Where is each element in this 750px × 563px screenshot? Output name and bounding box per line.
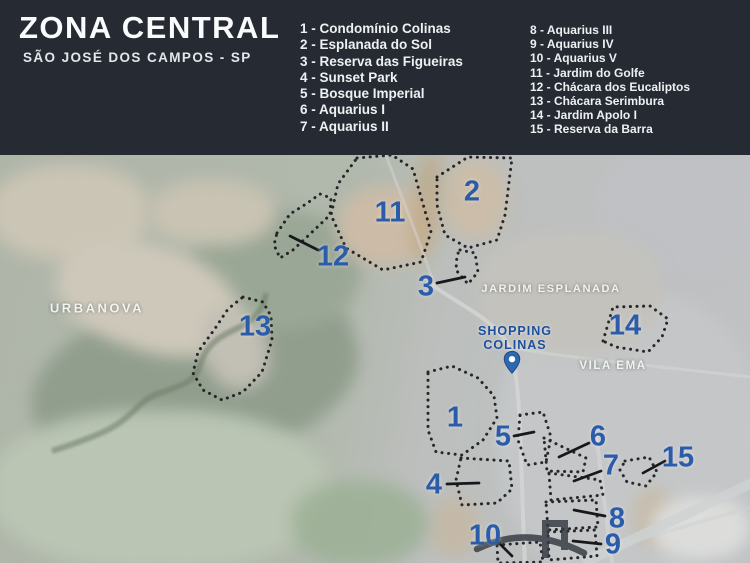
legend-item-15: 15 - Reserva da Barra bbox=[530, 122, 690, 136]
map-marker-3: 3 bbox=[418, 273, 434, 302]
brand-block: ZONA CENTRAL SÃO JOSÉ DOS CAMPOS - SP bbox=[19, 11, 280, 65]
map-marker-12: 12 bbox=[317, 243, 349, 272]
satellite-map: URBANOVA JARDIM ESPLANADA VILA EMA SHOPP… bbox=[0, 155, 750, 563]
infographic-zona-central: ZONA CENTRAL SÃO JOSÉ DOS CAMPOS - SP 1 … bbox=[0, 0, 750, 563]
map-marker-5: 5 bbox=[495, 423, 511, 452]
legend-item-3: 3 - Reserva das Figueiras bbox=[300, 54, 463, 70]
legend-item-4: 4 - Sunset Park bbox=[300, 70, 463, 86]
leader-line-5 bbox=[514, 432, 534, 436]
legend-item-14: 14 - Jardim Apolo I bbox=[530, 108, 690, 122]
legend-item-10: 10 - Aquarius V bbox=[530, 51, 690, 65]
river bbox=[52, 293, 266, 451]
poi-label-line1: SHOPPING bbox=[478, 324, 552, 338]
legend-column-2: 8 - Aquarius III 9 - Aquarius IV 10 - Aq… bbox=[530, 23, 690, 137]
location-pin-icon bbox=[503, 351, 521, 380]
page-subtitle: SÃO JOSÉ DOS CAMPOS - SP bbox=[23, 50, 280, 65]
map-marker-10: 10 bbox=[469, 522, 501, 551]
legend-column-1: 1 - Condomínio Colinas 2 - Esplanada do … bbox=[300, 21, 463, 135]
leader-line-4 bbox=[447, 483, 479, 484]
leader-line-6 bbox=[559, 443, 589, 457]
legend-item-9: 9 - Aquarius IV bbox=[530, 37, 690, 51]
map-marker-11: 11 bbox=[375, 199, 406, 228]
legend-item-11: 11 - Jardim do Golfe bbox=[530, 66, 690, 80]
legend-item-5: 5 - Bosque Imperial bbox=[300, 86, 463, 102]
region-outline-15 bbox=[620, 457, 657, 486]
area-label-jardim-esplanada: JARDIM ESPLANADA bbox=[481, 283, 620, 295]
legend-item-6: 6 - Aquarius I bbox=[300, 102, 463, 118]
legend-item-7: 7 - Aquarius II bbox=[300, 119, 463, 135]
map-marker-15: 15 bbox=[662, 444, 694, 473]
leader-line-12 bbox=[290, 236, 318, 250]
poi-label-shopping-colinas: SHOPPING COLINAS bbox=[478, 324, 552, 352]
map-marker-9: 9 bbox=[605, 531, 621, 560]
map-marker-6: 6 bbox=[590, 423, 606, 452]
map-marker-14: 14 bbox=[609, 312, 641, 341]
page-title: ZONA CENTRAL bbox=[19, 11, 280, 45]
legend-item-2: 2 - Esplanada do Sol bbox=[300, 37, 463, 53]
legend-item-8: 8 - Aquarius III bbox=[530, 23, 690, 37]
map-marker-1: 1 bbox=[447, 404, 463, 433]
map-marker-2: 2 bbox=[464, 178, 480, 207]
map-marker-4: 4 bbox=[426, 471, 442, 500]
roads bbox=[386, 155, 750, 563]
legend-item-1: 1 - Condomínio Colinas bbox=[300, 21, 463, 37]
legend-item-12: 12 - Chácara dos Eucaliptos bbox=[530, 80, 690, 94]
area-label-urbanova: URBANOVA bbox=[50, 301, 144, 316]
area-label-vila-ema: VILA EMA bbox=[579, 360, 646, 372]
region-outline-10 bbox=[497, 542, 543, 563]
header-band: ZONA CENTRAL SÃO JOSÉ DOS CAMPOS - SP 1 … bbox=[0, 0, 750, 155]
leader-line-3 bbox=[437, 277, 465, 283]
leader-line-8 bbox=[574, 510, 605, 516]
legend-item-13: 13 - Chácara Serimbura bbox=[530, 94, 690, 108]
map-marker-7: 7 bbox=[603, 452, 619, 481]
region-outline-4 bbox=[456, 458, 512, 505]
map-marker-13: 13 bbox=[239, 313, 271, 342]
region-outline-7 bbox=[549, 473, 603, 500]
